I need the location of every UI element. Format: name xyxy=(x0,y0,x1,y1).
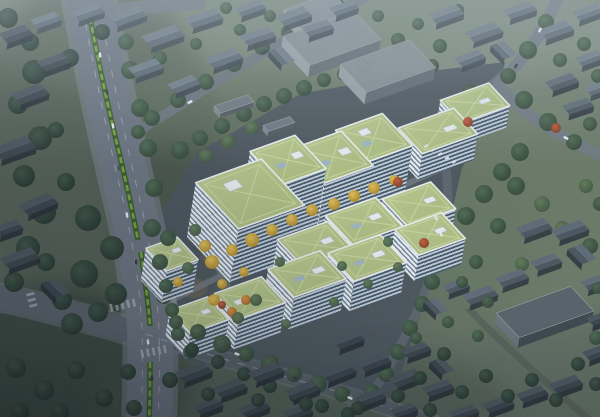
aerial-rendering-canvas xyxy=(0,0,600,417)
aerial-site-rendering-svg xyxy=(0,0,600,417)
blue-cast-overlay xyxy=(0,0,600,417)
atmosphere-layer xyxy=(0,0,600,417)
